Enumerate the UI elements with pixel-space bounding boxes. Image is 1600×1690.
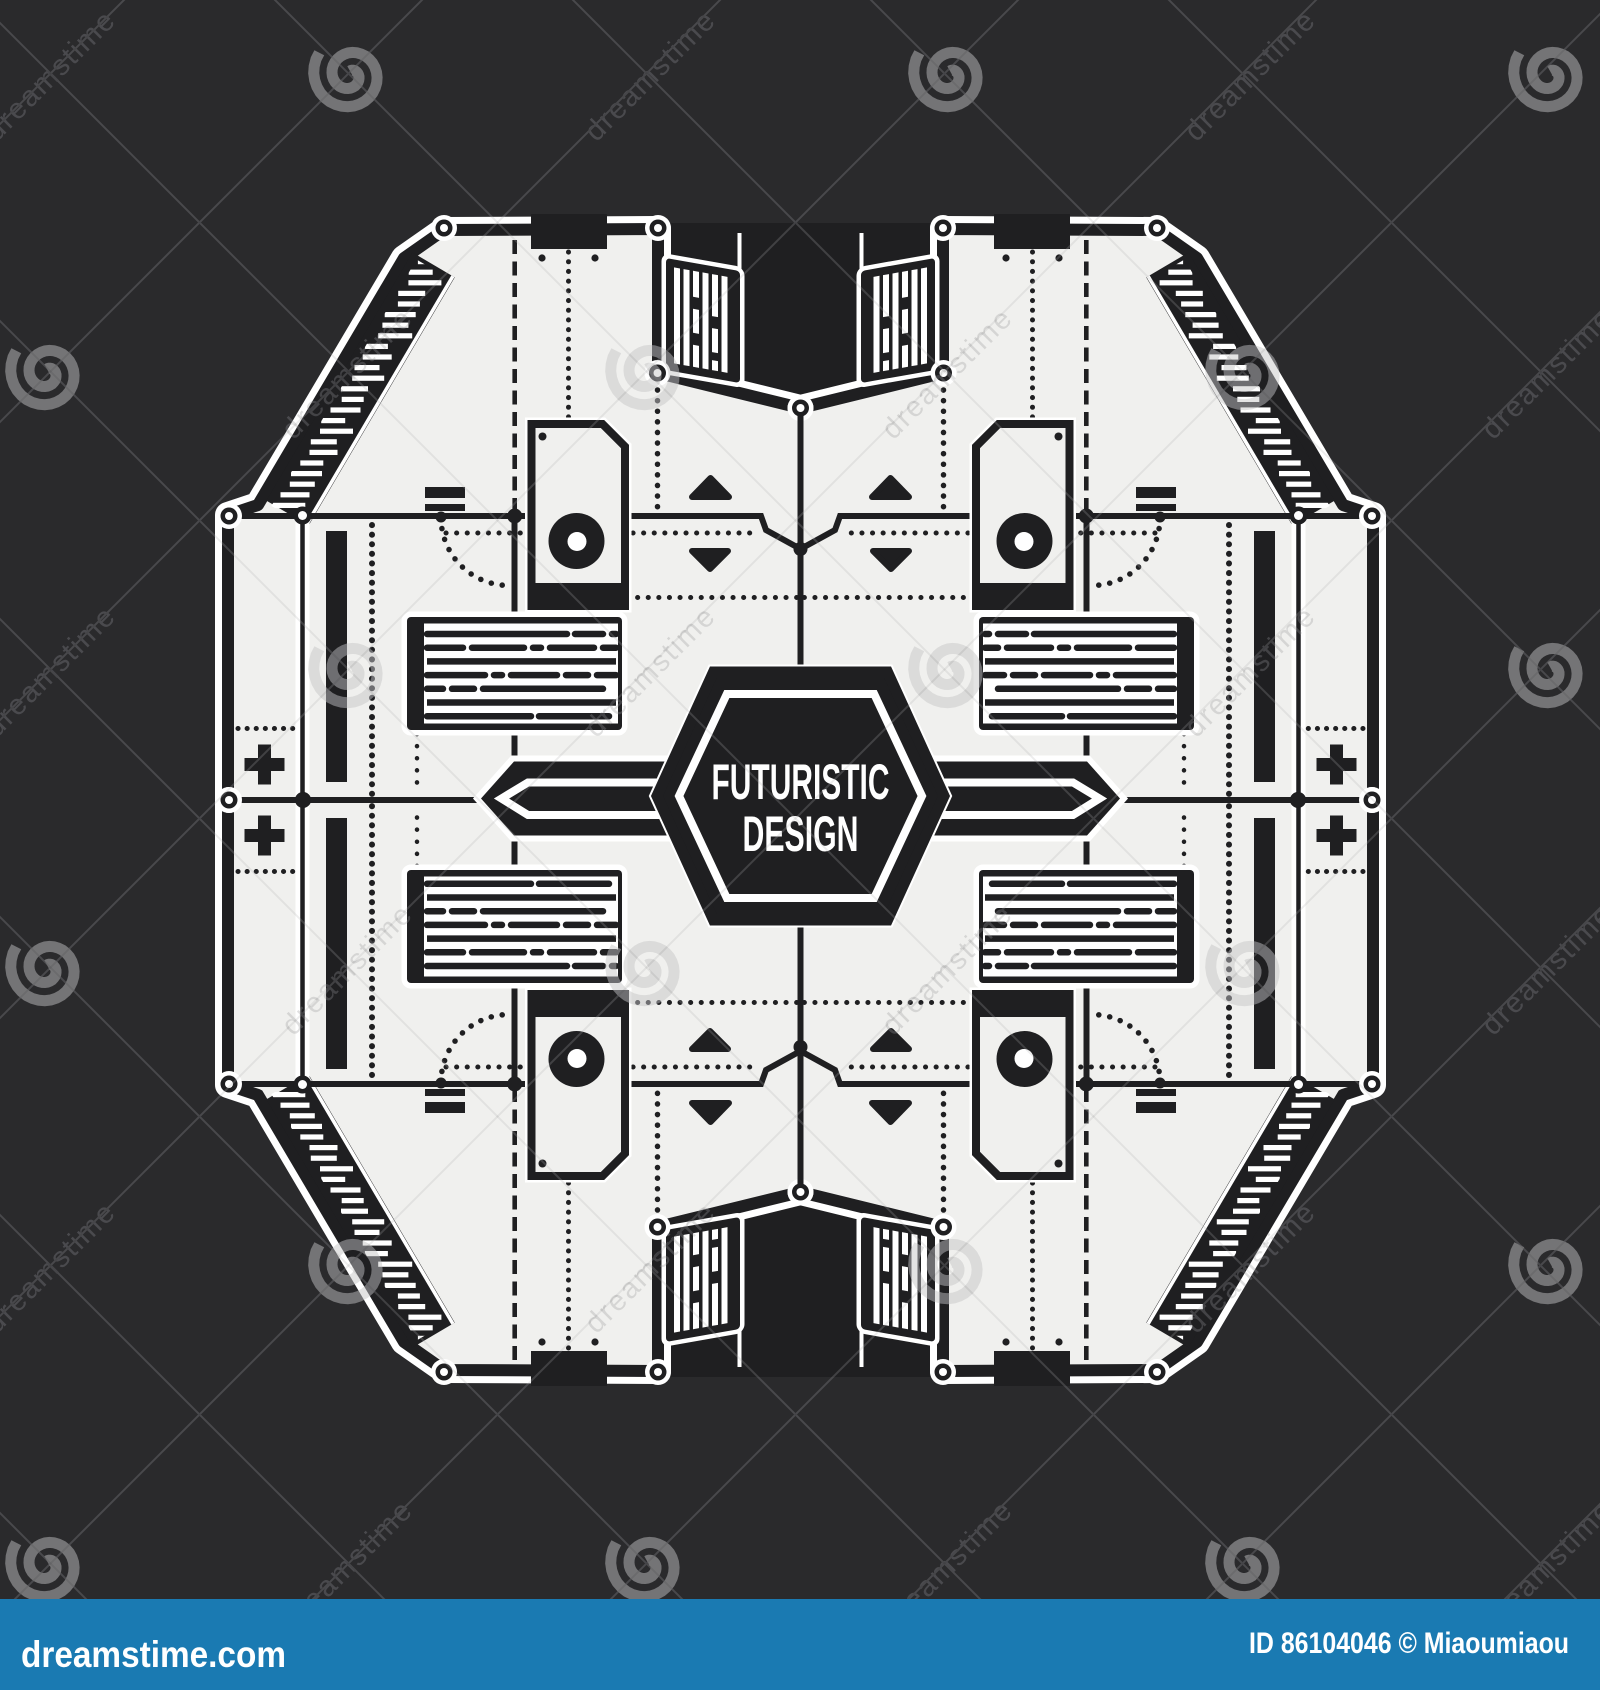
svg-text:dreamstime.com: dreamstime.com xyxy=(21,1634,286,1675)
svg-text:ID 86104046 © Miaoumiaou: ID 86104046 © Miaoumiaou xyxy=(1249,1627,1569,1660)
